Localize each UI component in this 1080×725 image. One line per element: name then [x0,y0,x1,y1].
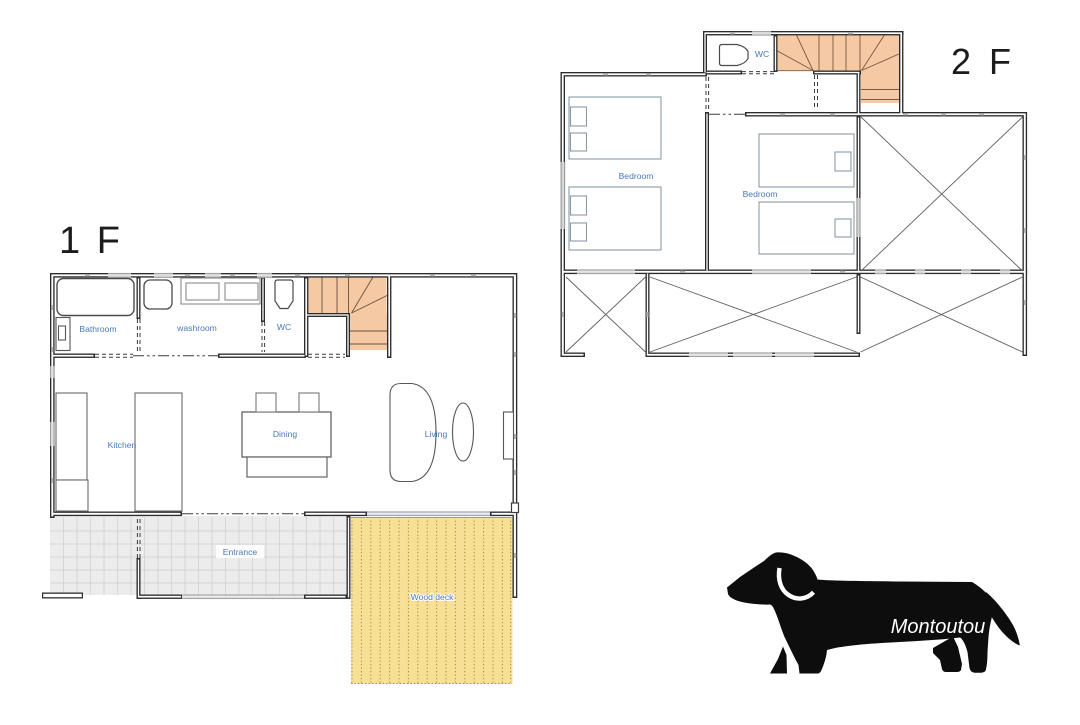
svg-text:WC: WC [755,49,769,59]
svg-text:Bathroom: Bathroom [79,324,116,334]
svg-text:Bedroom: Bedroom [743,189,778,199]
svg-text:1 F: 1 F [59,220,123,262]
svg-text:Entrance: Entrance [223,547,258,557]
svg-text:Montoutou: Montoutou [891,616,986,638]
svg-text:washroom: washroom [176,323,217,333]
svg-text:WC: WC [277,322,291,332]
svg-text:Kitchen: Kitchen [108,440,137,450]
svg-text:2 F: 2 F [951,41,1015,82]
svg-text:Dining: Dining [273,429,298,439]
svg-text:Living: Living [425,429,448,439]
svg-text:Wood deck: Wood deck [411,592,455,602]
svg-text:Bedroom: Bedroom [619,171,654,181]
